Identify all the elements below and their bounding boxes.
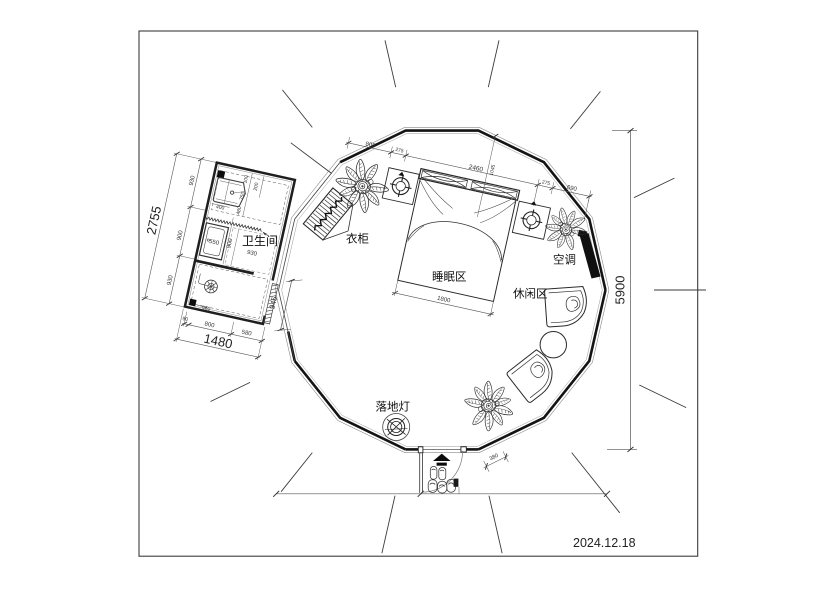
svg-text:衣柜: 衣柜 <box>346 232 369 246</box>
svg-text:休闲区: 休闲区 <box>513 287 548 301</box>
svg-text:5900: 5900 <box>613 276 628 305</box>
svg-text:落地灯: 落地灯 <box>376 401 411 414</box>
svg-text:睡眠区: 睡眠区 <box>432 271 467 284</box>
svg-text:卫生间: 卫生间 <box>242 234 278 248</box>
svg-text:2024.12.18: 2024.12.18 <box>573 536 636 550</box>
svg-text:空调: 空调 <box>553 253 576 267</box>
